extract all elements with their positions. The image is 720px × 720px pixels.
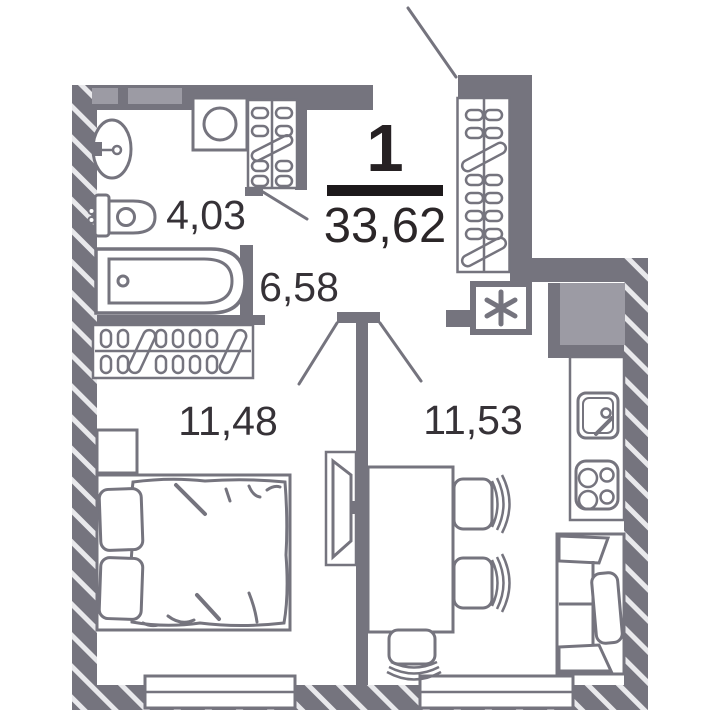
wall-bedroom-kitchen xyxy=(356,312,368,686)
pillow-icon xyxy=(99,488,143,550)
chair-icon xyxy=(454,554,510,612)
shaft-box xyxy=(473,284,529,332)
washing-machine-icon xyxy=(193,98,247,150)
bathtub-icon xyxy=(96,249,245,313)
bedroom-window xyxy=(145,676,295,708)
floor-plan-canvas: 1 33,62 4,03 6,58 11,48 11,53 xyxy=(0,0,720,720)
chair-icon xyxy=(454,475,510,533)
dining-table-icon xyxy=(368,467,453,632)
wall-insert-1 xyxy=(92,88,118,104)
pillow-icon xyxy=(99,557,143,619)
entrance-wardrobe-icon xyxy=(458,98,510,272)
wall-insert-2 xyxy=(128,88,182,104)
kitchen-sink-icon xyxy=(578,393,618,438)
wall-vent-left xyxy=(548,283,560,345)
towel-dryer-icon xyxy=(248,100,297,188)
bedroom-furniture xyxy=(93,325,358,630)
wall-exterior-right xyxy=(624,258,648,710)
chair-icon xyxy=(387,630,441,680)
unit-number: 1 xyxy=(327,110,443,187)
sofa-pillow-icon xyxy=(591,572,623,644)
wall-entrance-right xyxy=(510,75,532,282)
wall-exterior-left xyxy=(72,85,97,710)
hallway-area-label: 6,58 xyxy=(247,266,351,309)
stove-icon xyxy=(576,461,618,509)
bathroom-area-label: 4,03 xyxy=(156,194,256,237)
wall-bathroom-bedroom xyxy=(72,315,265,325)
double-bed-icon xyxy=(97,475,290,630)
wall-sink-icon xyxy=(93,120,131,178)
toilet-icon xyxy=(89,195,156,236)
tv-icon xyxy=(326,452,358,565)
area-divider-bar xyxy=(327,185,443,196)
kitchen-door-swing xyxy=(380,323,421,381)
total-area-label: 33,62 xyxy=(312,198,458,254)
vent-shaft xyxy=(560,283,625,345)
nightstand-icon xyxy=(97,430,137,473)
kitchen-window xyxy=(420,676,573,708)
bedroom-wardrobe-icon xyxy=(93,325,253,378)
bathroom-door-swing xyxy=(263,192,307,219)
bedroom-door-swing xyxy=(299,323,337,384)
kitchen-area-label: 11,53 xyxy=(411,399,535,442)
bedroom-area-label: 11,48 xyxy=(166,400,290,443)
entrance-leader-line xyxy=(408,8,456,77)
floor-plan-drawing xyxy=(0,0,720,720)
wall-shaft-stub xyxy=(446,310,472,327)
sofa-icon xyxy=(557,534,624,674)
